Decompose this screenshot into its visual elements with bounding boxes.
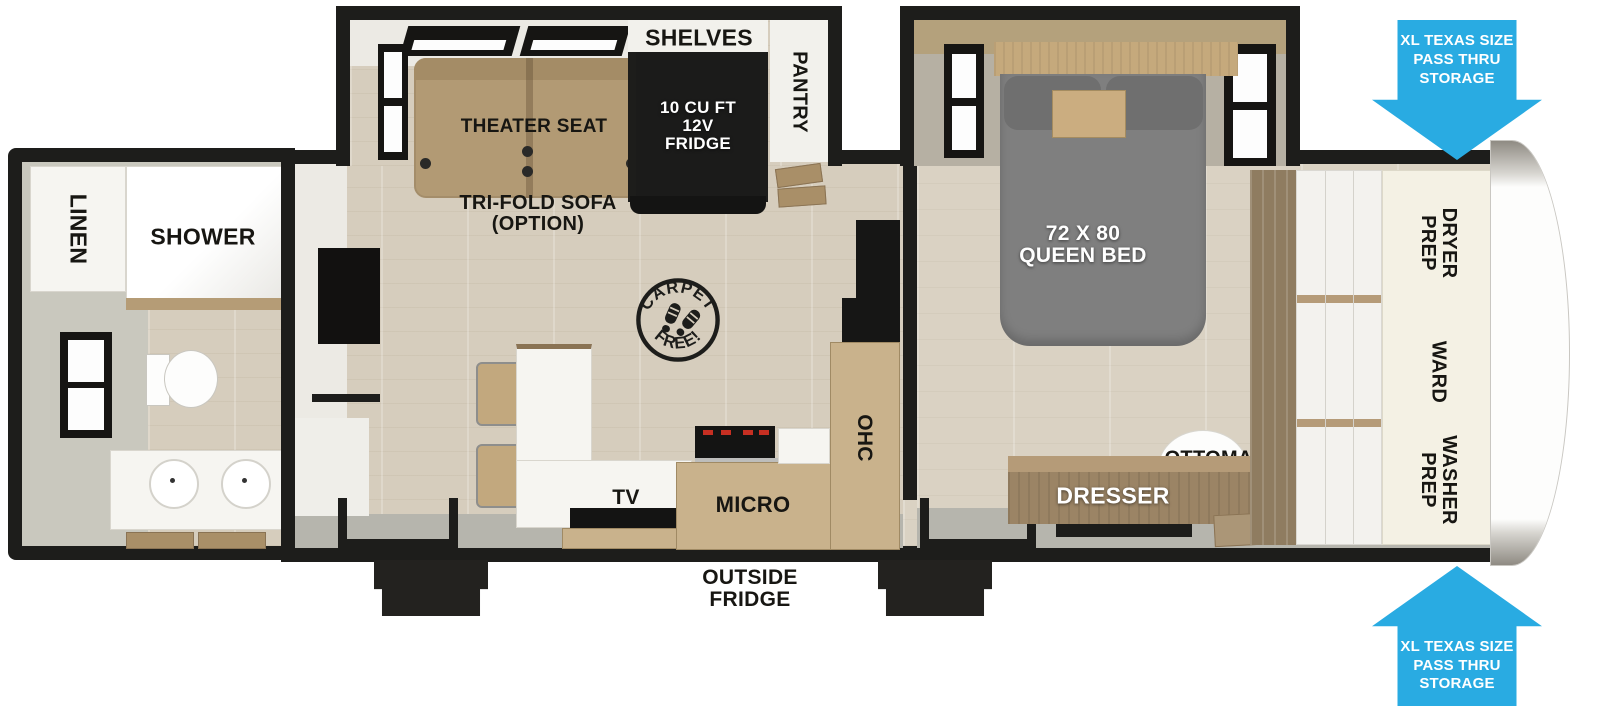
bedroom-window	[944, 44, 984, 158]
linen-label: LINEN	[65, 194, 92, 265]
front-cap-top-trim	[1491, 141, 1569, 187]
arrow-text-line: STORAGE	[1419, 675, 1494, 694]
dryer-prep-line: DRYER	[1438, 208, 1459, 279]
vanity-drawer	[198, 532, 266, 549]
vanity-drawer	[126, 532, 194, 549]
toilet-bowl	[164, 350, 218, 408]
burner-indicator	[721, 430, 731, 435]
tv-lift	[570, 508, 682, 530]
sink	[221, 459, 271, 509]
arrow-text-line: PASS THRU	[1413, 51, 1500, 70]
tall-cabinet	[856, 220, 900, 342]
dresser-label: DRESSER	[1056, 483, 1169, 510]
rv-floorplan: LINEN SHOWER THE	[0, 0, 1600, 707]
window-pane	[1233, 54, 1267, 102]
washer-prep-label: WASHER PREP	[1417, 435, 1459, 525]
front-cap	[1490, 140, 1570, 566]
bed-shelf-box	[1052, 90, 1126, 138]
cupholder	[522, 166, 533, 177]
window-pane	[952, 54, 976, 98]
window-pane	[1233, 110, 1267, 158]
washer-prep-line: PREP	[1417, 452, 1438, 508]
pass-thru-arrow-text: XL TEXAS SIZE PASS THRU STORAGE	[1372, 32, 1542, 88]
wardrobe-shelf	[1297, 419, 1381, 427]
theater-seat-label: THEATER SEAT	[461, 116, 607, 138]
trifold-line: (OPTION)	[492, 214, 584, 235]
window-pane	[68, 388, 104, 430]
wardrobe-door-seam	[1353, 171, 1354, 544]
window-pane	[952, 106, 976, 150]
ward-label: WARD	[1427, 341, 1450, 403]
dryer-prep-label: DRYER PREP	[1417, 208, 1459, 279]
pass-thru-arrow-up: XL TEXAS SIZE PASS THRU STORAGE	[1372, 566, 1542, 706]
front-cap-bottom-trim	[1491, 519, 1569, 565]
burner-indicator	[759, 430, 769, 435]
window-pane	[530, 40, 617, 50]
shower-ledge	[126, 298, 282, 310]
cooktop	[695, 426, 775, 462]
washer-prep-line: WASHER	[1438, 435, 1459, 525]
micro-label: MICRO	[716, 492, 791, 518]
dresser-shadow	[1056, 524, 1192, 537]
fridge-base	[630, 196, 766, 214]
arrow-text-line: STORAGE	[1419, 70, 1494, 89]
burner-indicator	[703, 430, 713, 435]
bathroom-window	[60, 332, 112, 438]
outside-fridge-line: FRIDGE	[709, 589, 790, 611]
sink	[149, 459, 199, 509]
fridge-line: FRIDGE	[665, 135, 731, 153]
bed-label: 72 X 80 QUEEN BED	[1019, 223, 1147, 267]
trifold-sofa-label: TRI-FOLD SOFA (OPTION)	[459, 193, 616, 235]
slideout-window	[520, 26, 631, 56]
arrow-text-line: XL TEXAS SIZE	[1400, 32, 1513, 51]
cupholder	[420, 158, 431, 169]
burner-indicator	[743, 430, 753, 435]
window-pane	[68, 340, 104, 382]
fridge-label: 10 CU FT 12V FRIDGE	[660, 99, 736, 153]
window-pane	[411, 40, 506, 50]
slideout-side-window	[378, 44, 408, 160]
arrow-text-line: XL TEXAS SIZE	[1400, 638, 1513, 657]
entertainment-tv-panel	[318, 248, 380, 344]
wardrobe-door-seam	[1325, 171, 1326, 544]
hearth-line	[312, 394, 380, 402]
faucet-dot	[242, 478, 247, 483]
slideout-window	[400, 26, 521, 56]
window-pane	[384, 106, 402, 152]
shelves-label: SHELVES	[645, 25, 753, 52]
fridge-line: 10 CU FT	[660, 99, 736, 117]
outside-fridge-line: OUTSIDE	[702, 567, 797, 589]
ohc-label: OHC	[852, 414, 876, 462]
pass-thru-arrow-text: XL TEXAS SIZE PASS THRU STORAGE	[1372, 638, 1542, 694]
dryer-prep-line: PREP	[1417, 215, 1438, 271]
faucet-dot	[170, 478, 175, 483]
vanity-counter	[110, 450, 282, 530]
wardrobe-shelf	[1297, 295, 1381, 303]
bed-type-line: QUEEN BED	[1019, 245, 1147, 267]
entry-step	[374, 560, 488, 616]
cupholder	[522, 146, 533, 157]
tv-label: TV	[612, 486, 639, 510]
fridge-line: 12V	[682, 117, 713, 135]
headboard-shelf	[994, 42, 1238, 76]
entry-step	[878, 560, 992, 616]
arrow-text-line: PASS THRU	[1413, 657, 1500, 676]
pantry-label: PANTRY	[788, 51, 811, 133]
bed-size-line: 72 X 80	[1046, 223, 1121, 245]
wardrobe-cabinets	[1296, 170, 1382, 545]
bedroom-door-gap	[903, 500, 917, 546]
outside-fridge-label: OUTSIDE FRIDGE	[702, 567, 797, 611]
trifold-line: TRI-FOLD SOFA	[459, 193, 616, 214]
carpet-free-stamp: CARPET FREE!	[634, 276, 722, 364]
main-entry-door	[338, 498, 458, 548]
wardrobe-side-panels	[1250, 170, 1296, 545]
window-pane	[384, 52, 402, 98]
shower-label: SHOWER	[150, 224, 255, 251]
cabinet-step	[842, 298, 860, 342]
pass-thru-arrow-down: XL TEXAS SIZE PASS THRU STORAGE	[1372, 20, 1542, 160]
counter-segment	[778, 428, 830, 464]
pantry-shelf	[777, 185, 826, 207]
